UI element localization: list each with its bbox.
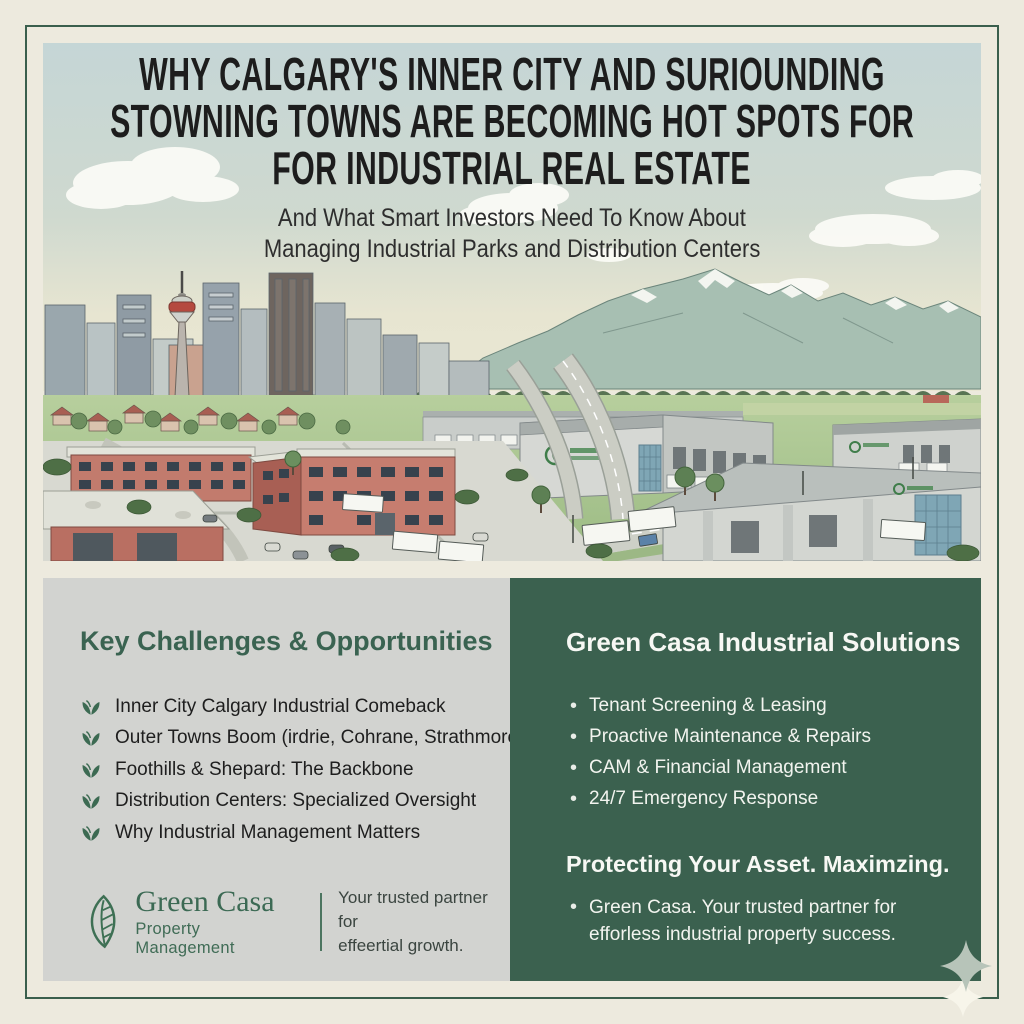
frame-border [25,25,999,999]
poster: WHY CALGARY'S INNER CITY AND SURIOUNDING… [0,0,1024,1024]
sparkle-icon [925,925,1010,1024]
